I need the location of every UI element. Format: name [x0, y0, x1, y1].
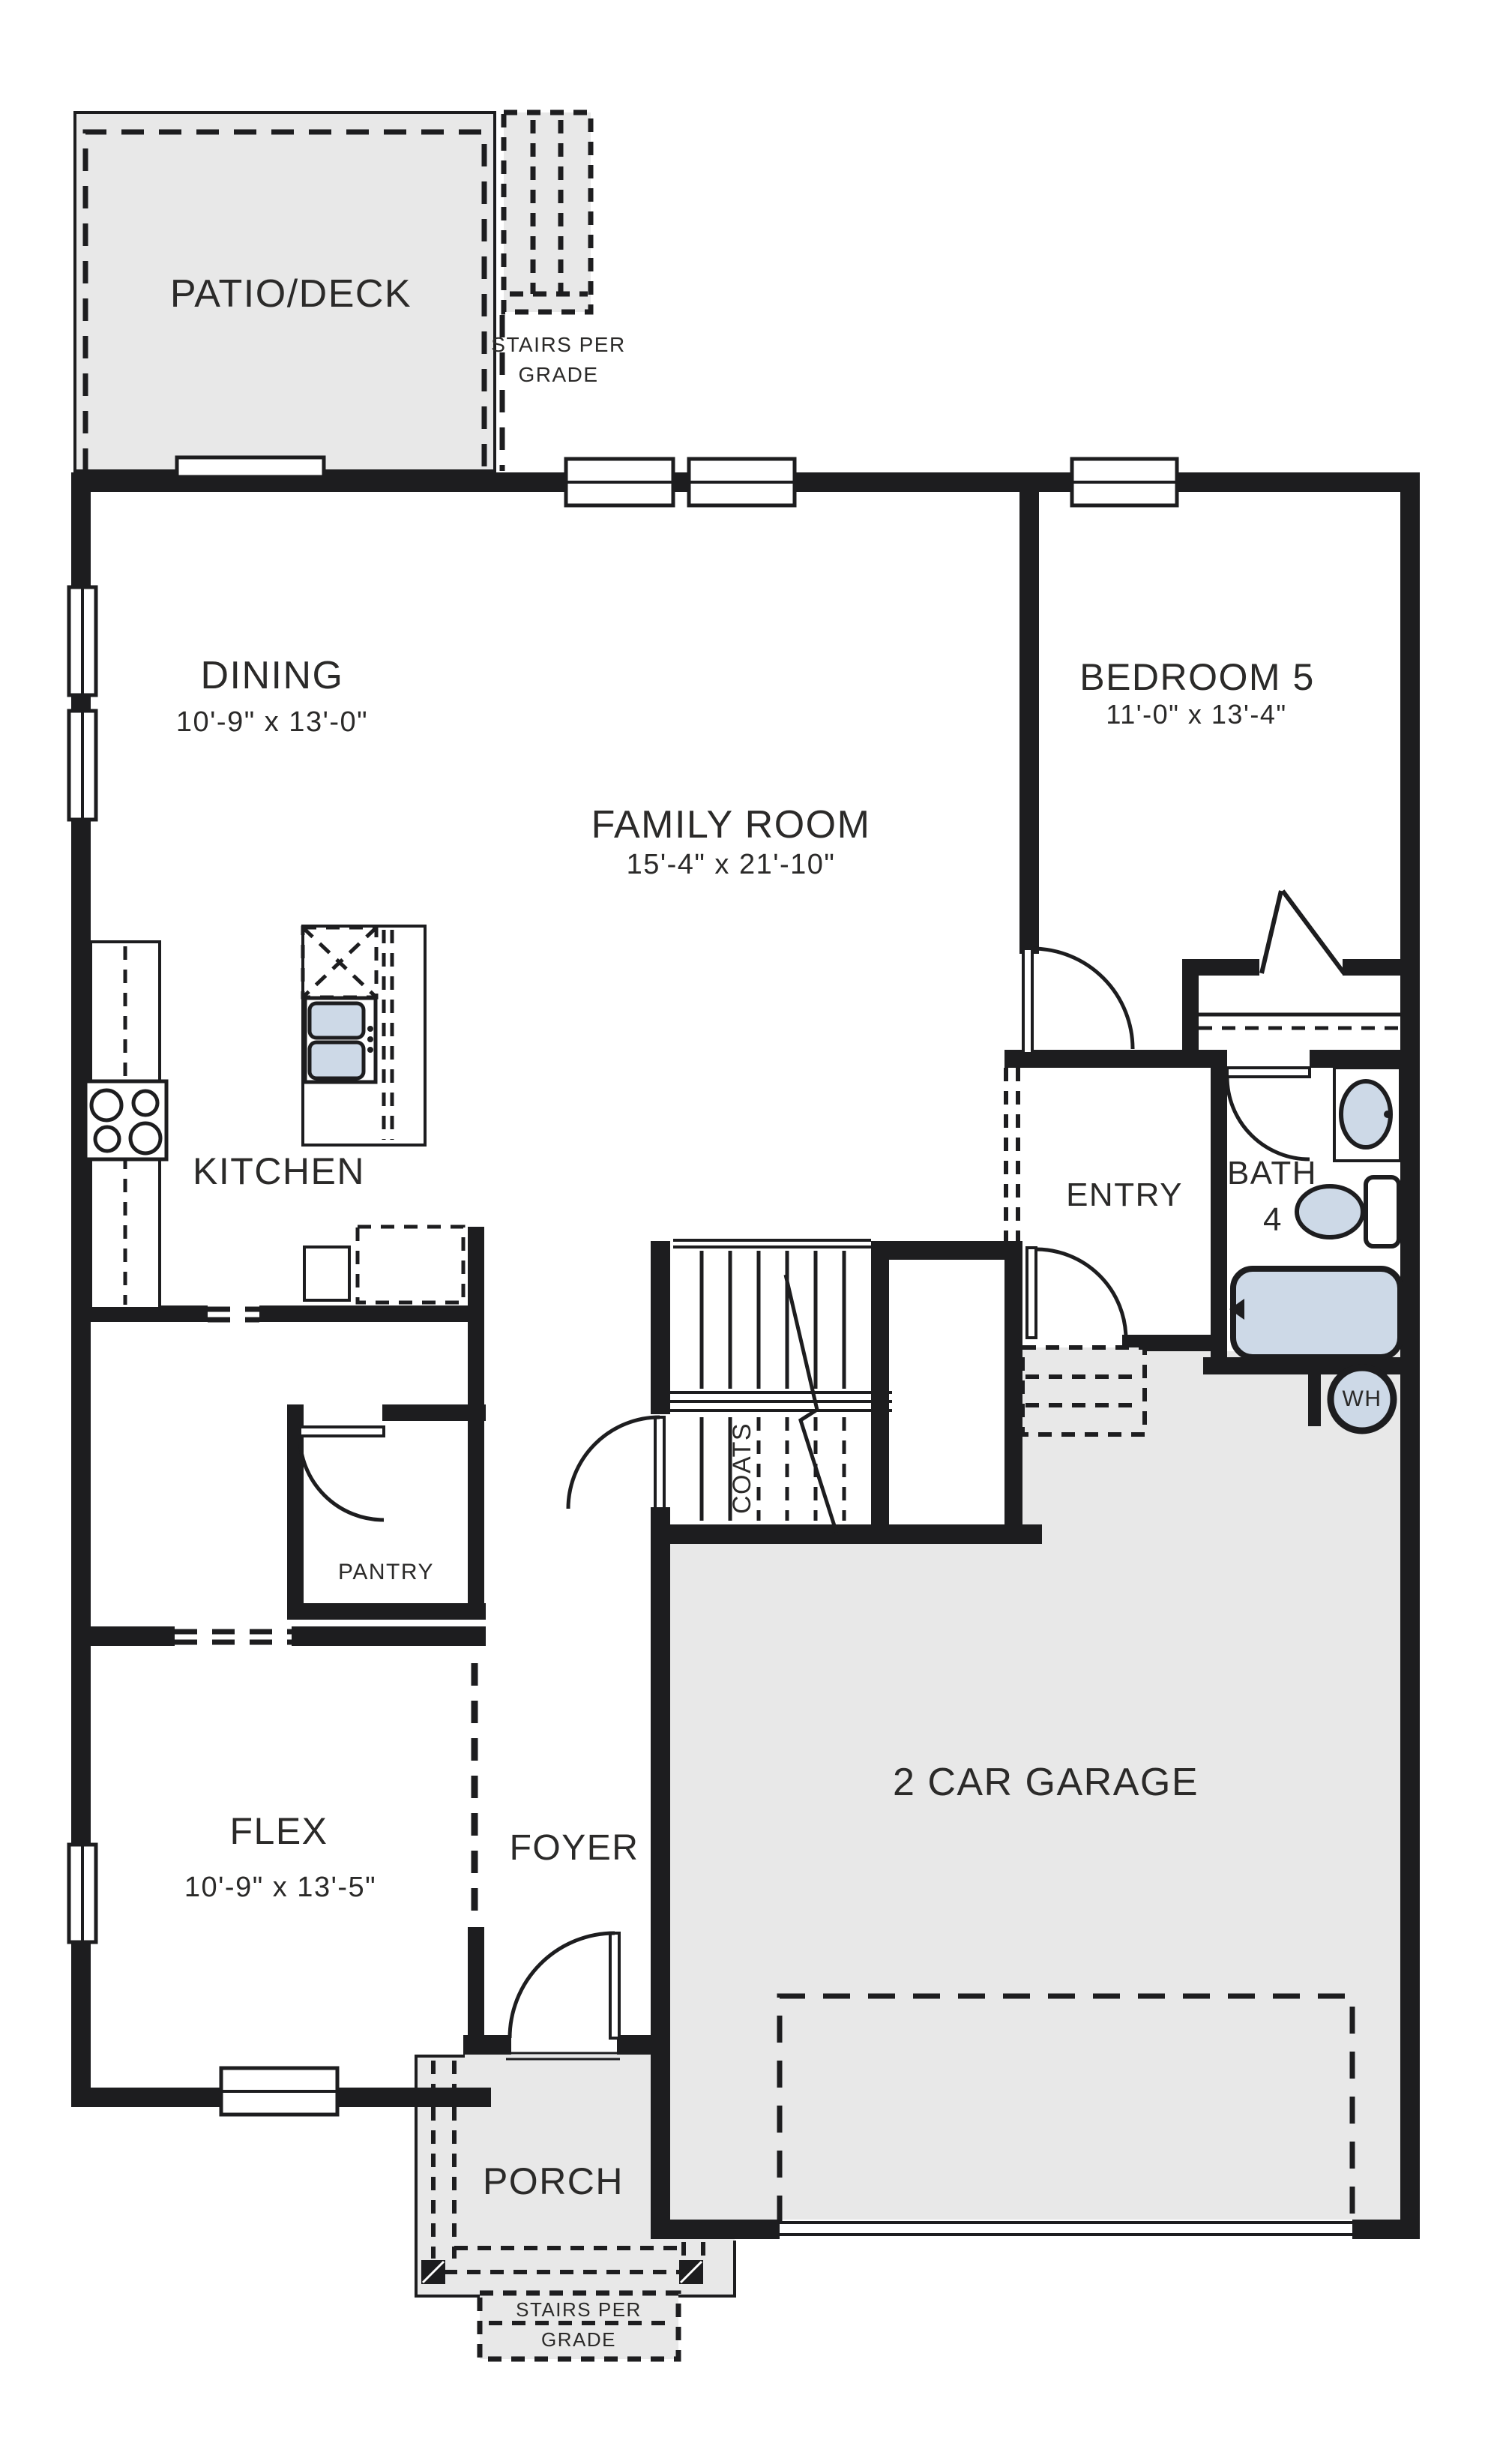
bedroom5-dims: 11'-0" x 13'-4": [1106, 701, 1286, 728]
break-line: [786, 1275, 837, 1533]
entry-label: ENTRY: [1066, 1179, 1183, 1212]
stairs-bottom-label-2: GRADE: [541, 2330, 616, 2349]
bath4-label: BATH: [1227, 1157, 1317, 1190]
garage-entry-door: [1027, 1248, 1126, 1339]
stairs-per-grade-top-symbol: [504, 112, 591, 312]
porch-label: PORCH: [483, 2163, 624, 2200]
staircase: [658, 1240, 892, 1533]
vanity-sink-symbol: [1334, 1068, 1400, 1161]
dining-label: DINING: [201, 656, 344, 695]
family-room-label: FAMILY ROOM: [591, 805, 871, 844]
family-room-dims: 15'-4" x 21'-10": [627, 850, 836, 879]
pantry-label: PANTRY: [338, 1561, 434, 1584]
porch-post: [679, 2260, 703, 2284]
bedroom5-label: BEDROOM 5: [1079, 658, 1315, 696]
pantry-door: [300, 1427, 384, 1520]
flex-label: FLEX: [229, 1812, 328, 1850]
cased-opening-dashes: [175, 1068, 1018, 1926]
bath4-door: [1227, 1068, 1310, 1159]
coats-closet-door: [568, 1417, 664, 1509]
bedroom5-door: [1023, 949, 1133, 1054]
water-heater-label: WH: [1343, 1388, 1382, 1410]
closet-symbol: [1199, 891, 1400, 1028]
front-door: [506, 1933, 620, 2059]
porch-post: [421, 2260, 445, 2284]
bathtub-symbol: [1229, 1269, 1400, 1357]
refrigerator-symbol: [304, 1227, 463, 1302]
garage-steps-symbol: [1022, 1347, 1145, 1434]
stove-symbol: [85, 1081, 166, 1159]
flex-dims: 10'-9" x 13'-5": [184, 1873, 376, 1902]
garage-label: 2 CAR GARAGE: [893, 1763, 1199, 1802]
bath4-number: 4: [1263, 1204, 1283, 1236]
stairs-top-label-2: GRADE: [518, 364, 598, 385]
island-sink-symbol: [305, 998, 376, 1082]
dining-dims: 10'-9" x 13'-0": [176, 708, 368, 736]
garage-door-symbol: [780, 1996, 1352, 2235]
stairs-bottom-label-1: STAIRS PER: [516, 2300, 642, 2319]
closet-double-doors: [1262, 891, 1344, 973]
floor-plan: PATIO/DECK STAIRS PER GRADE DINING 10'-9…: [0, 0, 1488, 2464]
coats-label: COATS: [729, 1422, 755, 1514]
foyer-label: FOYER: [510, 1830, 639, 1866]
sliding-door-symbol: [177, 457, 360, 489]
kitchen-label: KITCHEN: [193, 1153, 365, 1190]
patio-deck-label: PATIO/DECK: [170, 274, 412, 313]
stairs-top-label-1: STAIRS PER: [491, 334, 625, 355]
